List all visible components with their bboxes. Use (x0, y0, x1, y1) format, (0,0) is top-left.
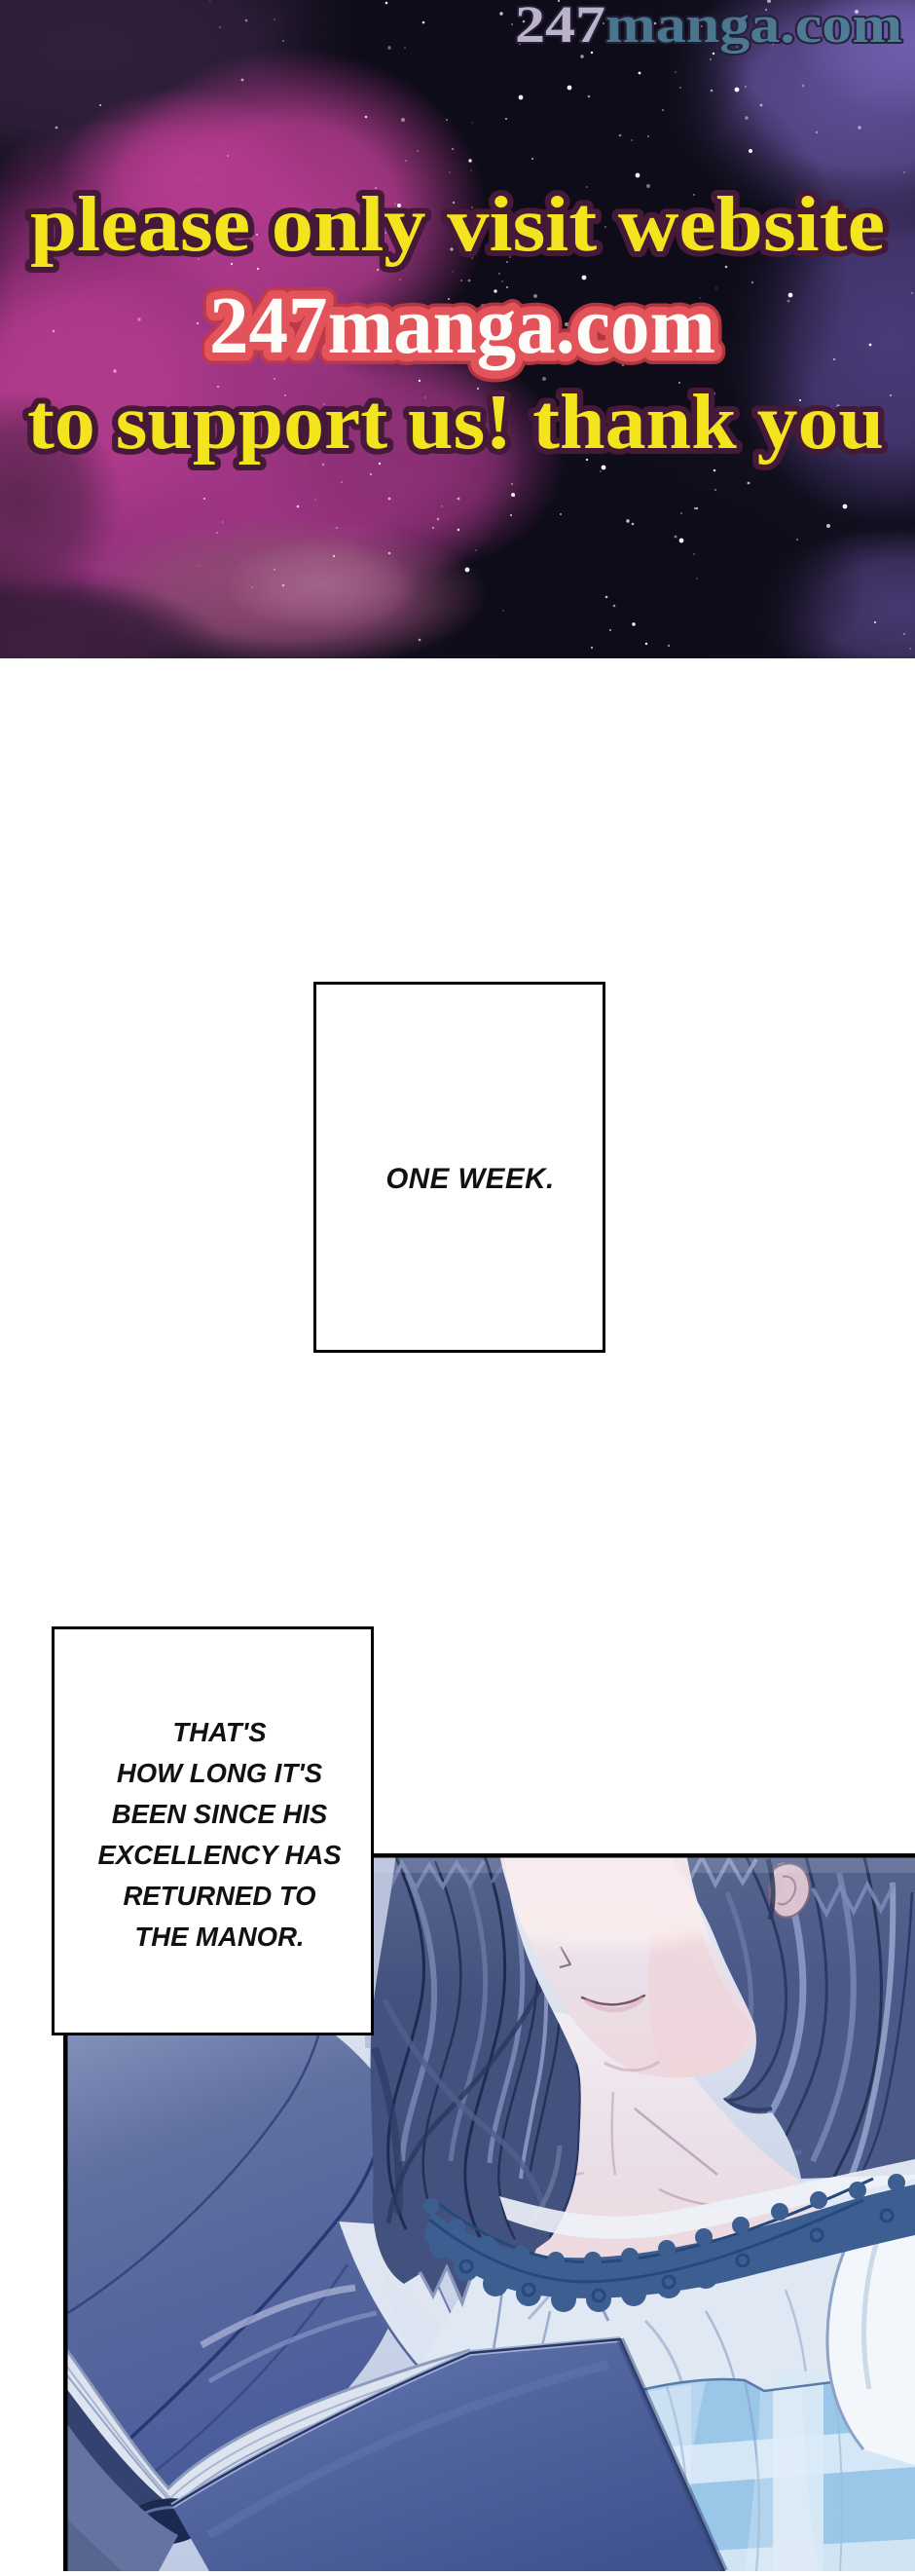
svg-text:247manga.com: 247manga.com (209, 280, 715, 371)
svg-text:please only visit website: please only visit website (30, 182, 885, 268)
svg-text:to support us! thank you: to support us! thank you (27, 380, 884, 466)
svg-text:247manga.com: 247manga.com (515, 0, 902, 54)
